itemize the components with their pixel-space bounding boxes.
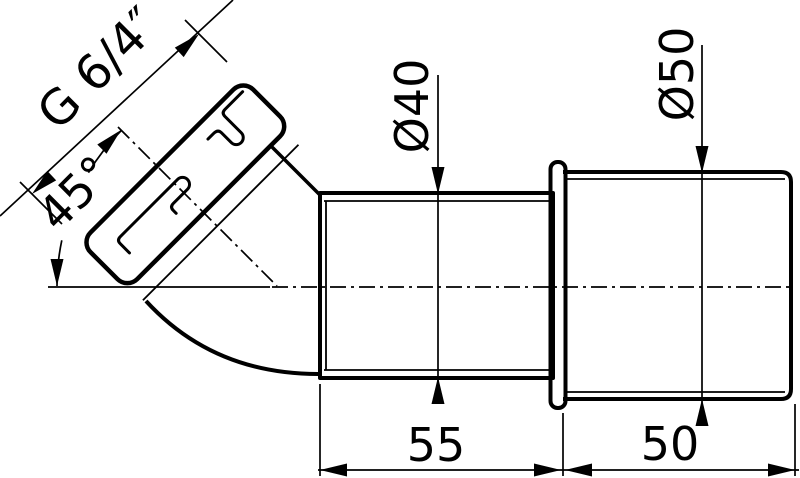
dimension-angle: 45°: [27, 125, 270, 287]
thread-profile-lower: [117, 174, 199, 256]
dimension-d50: Ø50: [650, 27, 708, 426]
len55-arrow-left: [320, 464, 347, 477]
d50-arrow-top: [696, 146, 709, 173]
angle-label: 45°: [27, 145, 123, 241]
angled-axis-centerline: [118, 127, 277, 286]
len50-label: 50: [641, 417, 700, 471]
len50-arrow-left: [565, 464, 592, 477]
len55-label: 55: [407, 418, 466, 472]
technical-drawing: G 6/4″ 45° Ø40 Ø50 55 50: [0, 0, 800, 478]
drawing-canvas: G 6/4″ 45° Ø40 Ø50 55 50: [0, 0, 800, 478]
pipe-40-outline: [320, 193, 553, 378]
centerlines: [118, 127, 789, 287]
angle-arrow-lower: [51, 259, 64, 286]
elbow-outer-curve: [146, 301, 318, 374]
thread-profile-upper: [202, 92, 268, 158]
dimension-d40: Ø40: [385, 59, 444, 404]
pipe-50-outline: [563, 172, 791, 399]
len50-arrow-right: [768, 464, 795, 477]
d50-label: Ø50: [650, 27, 704, 122]
d40-arrow-top: [432, 167, 445, 194]
dimension-thread: G 6/4″: [0, 0, 233, 224]
d40-arrow-bottom: [432, 377, 445, 404]
len55-arrow-right: [534, 464, 561, 477]
thread-size-label: G 6/4″: [27, 0, 171, 141]
nut-back-face-line: [143, 145, 299, 301]
elbow-top-edge: [272, 147, 319, 194]
d40-label: Ø40: [385, 59, 439, 154]
